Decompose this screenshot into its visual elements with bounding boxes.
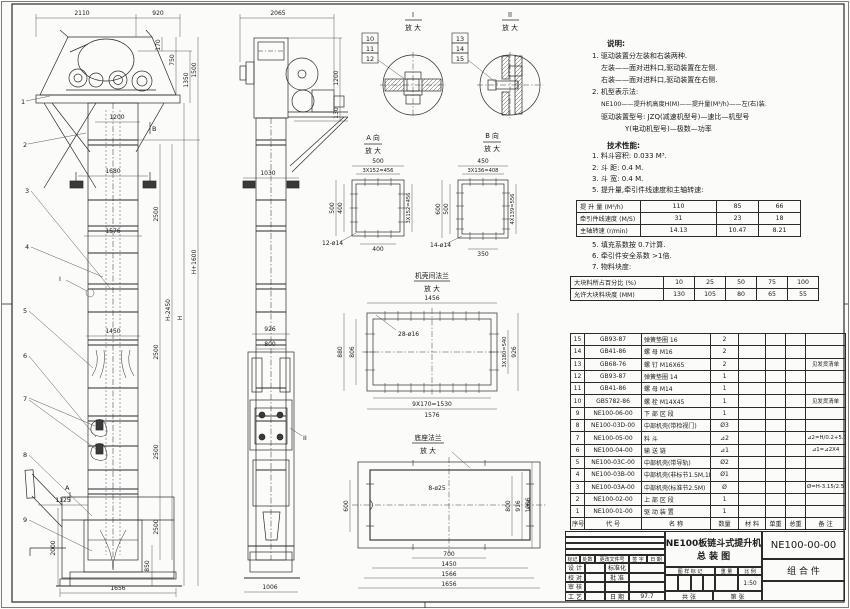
parts-col-totalweight: 总重 xyxy=(786,518,806,530)
parts-cell: NE100-06-00 xyxy=(585,407,642,419)
svg-text:3X152=456: 3X152=456 xyxy=(406,192,412,223)
parts-cell: NE100-04-00 xyxy=(585,444,642,456)
svg-text:926: 926 xyxy=(264,326,276,333)
front-elevation-view xyxy=(25,30,182,586)
parts-cell: ⊿2=H/0.2+5.75 xyxy=(806,432,846,444)
scale-label: 比 例 xyxy=(738,567,762,575)
parts-cell xyxy=(739,334,766,346)
svg-text:B 向: B 向 xyxy=(485,131,499,140)
base-flange-labels: 底座法兰 放 大 8-ø25 600 800 916 1006 700 1450… xyxy=(343,433,532,588)
svg-text:500: 500 xyxy=(329,202,336,214)
speed-label: 主轴转速 (r/min) xyxy=(577,225,641,237)
svg-text:1656: 1656 xyxy=(441,581,456,588)
svg-text:2065: 2065 xyxy=(270,10,285,17)
parts-cell xyxy=(766,456,786,468)
svg-text:11: 11 xyxy=(366,45,374,53)
parts-cell xyxy=(786,481,806,493)
parts-cell: NE100-03B-00 xyxy=(585,469,642,481)
sheet-total: 共 张 xyxy=(665,591,713,601)
title-block: 标记 处数 更改文件号 签 字 日 期 设 计 标准化 校 对 批 准 审 核 … xyxy=(565,531,845,601)
parts-cell xyxy=(786,370,806,382)
stamp-label: 图 样 标 记 xyxy=(665,567,715,575)
svg-text:8-ø25: 8-ø25 xyxy=(428,485,445,492)
role-design: 设 计 xyxy=(565,563,585,573)
parts-cell: 4 xyxy=(571,469,585,481)
svg-text:2: 2 xyxy=(23,141,27,149)
svg-text:9X170=1530: 9X170=1530 xyxy=(412,401,452,408)
front-callout-labels: 1 2 3 4 I 5 6 7 8 9 A B xyxy=(21,98,156,524)
size-label: 大块料所占百分比 (%) xyxy=(571,277,664,289)
svg-text:2110: 2110 xyxy=(74,10,89,17)
parts-cell: NE100-03D-00 xyxy=(585,420,642,432)
svg-text:14-ø14: 14-ø14 xyxy=(430,242,451,249)
note-line: 左装——面对进料口,驱动装置在左侧. xyxy=(601,65,717,73)
svg-text:2000: 2000 xyxy=(50,540,57,555)
parts-cell: 14 xyxy=(571,346,585,358)
parts-cell: 2 xyxy=(711,334,739,346)
drawing-title: NE100板链斗式提升机 总 装 图 xyxy=(665,531,762,567)
size-val: 50 xyxy=(726,277,757,289)
svg-text:926: 926 xyxy=(511,346,518,358)
parts-cell xyxy=(766,420,786,432)
tech-line: 3. 斗 宽: 0.4 M. xyxy=(592,176,643,184)
parts-cell xyxy=(786,383,806,395)
size-val: 55 xyxy=(788,289,819,301)
parts-cell xyxy=(786,334,806,346)
parts-cell: 6 xyxy=(571,444,585,456)
svg-text:10: 10 xyxy=(366,35,374,43)
svg-text:2500: 2500 xyxy=(153,444,160,459)
size-label: 允许大块料块度 (MM) xyxy=(571,289,664,301)
parts-cell: NE100-03C-00 xyxy=(585,456,642,468)
svg-text:8: 8 xyxy=(23,451,27,459)
a-view-labels: A 向 放 大 500 3X152=456 500 400 3X152=456 … xyxy=(322,133,412,253)
rev-col: 标记 xyxy=(565,555,580,563)
parts-cell xyxy=(806,407,846,419)
svg-text:7: 7 xyxy=(23,395,27,403)
parts-cell xyxy=(739,370,766,382)
side-dim-labels: 2065 1200 130 1030 926 800 1006 II xyxy=(260,10,340,591)
svg-text:13: 13 xyxy=(456,35,464,43)
svg-text:1576: 1576 xyxy=(105,228,120,235)
parts-cell xyxy=(739,432,766,444)
parts-cell: 弹簧垫圈 16 xyxy=(642,334,711,346)
parts-cell: 8 xyxy=(571,420,585,432)
size-val: 75 xyxy=(757,277,788,289)
parts-cell: 1 xyxy=(711,506,739,518)
role-process: 工 艺 xyxy=(565,592,585,602)
parts-cell xyxy=(766,444,786,456)
parts-cell xyxy=(786,493,806,505)
size-val: 25 xyxy=(695,277,726,289)
svg-text:5: 5 xyxy=(23,307,27,315)
parts-row: 15GB93-87弹簧垫圈 162 xyxy=(571,334,846,346)
speed-val: 23 xyxy=(717,213,759,225)
parts-cell: 2 xyxy=(711,358,739,370)
parts-cell: 中部机壳(带导轨) xyxy=(642,456,711,468)
parts-cell xyxy=(766,506,786,518)
tech-line: 7. 物料块度: xyxy=(592,264,631,272)
tech-line: 5. 提升量,牵引件线速度和主轴转速: xyxy=(592,187,704,195)
svg-text:2500: 2500 xyxy=(153,519,160,534)
parts-cell xyxy=(739,469,766,481)
svg-text:3: 3 xyxy=(25,187,29,195)
detail-circle-2 xyxy=(452,20,543,118)
svg-text:放 大: 放 大 xyxy=(424,284,440,293)
tech-line: 5. 填充系数按 0.7计算. xyxy=(592,242,666,250)
svg-text:1450: 1450 xyxy=(105,328,120,335)
note-line: 2. 机型表示法: xyxy=(592,89,638,97)
parts-row: 3NE100-03A-00中部机壳(标准节2.5M)ØØ=H-3.15/2.5 xyxy=(571,481,846,493)
parts-row: 2NE100-02-00上 部 区 段1 xyxy=(571,493,846,505)
parts-cell: ⊿1 xyxy=(711,444,739,456)
svg-text:I: I xyxy=(59,275,61,283)
parts-row: 14GB41-86螺 母 M162 xyxy=(571,346,846,358)
size-val: 105 xyxy=(695,289,726,301)
parts-cell xyxy=(806,506,846,518)
tech-line: 1. 料斗容积: 0.033 M³. xyxy=(592,153,667,161)
parts-cell: 10 xyxy=(571,395,585,407)
parts-cell xyxy=(806,456,846,468)
svg-text:14: 14 xyxy=(456,45,464,53)
side-elevation-view xyxy=(240,38,348,578)
parts-cell: ⊿1=⊿2X4 xyxy=(806,444,846,456)
front-dimensions xyxy=(36,14,200,597)
parts-header-row: 序号 代 号 名 称 数量 材 料 单重 总重 备 注 xyxy=(571,518,846,530)
parts-cell: GB93-87 xyxy=(585,334,642,346)
parts-cell: 2 xyxy=(711,346,739,358)
parts-cell xyxy=(766,481,786,493)
parts-cell xyxy=(739,456,766,468)
svg-text:800: 800 xyxy=(505,500,512,512)
parts-cell: NE100-05-00 xyxy=(585,432,642,444)
svg-text:130: 130 xyxy=(333,107,340,119)
parts-cell: GB93-87 xyxy=(585,370,642,382)
parts-row: 13GB68-76螺 钉 M16X652见发货清单 xyxy=(571,358,846,370)
parts-cell: 中部机壳(非标节1.5M,1M) xyxy=(642,469,711,481)
svg-text:I: I xyxy=(412,11,414,19)
parts-cell xyxy=(766,493,786,505)
parts-cell: 12 xyxy=(571,370,585,382)
size-table: 大块料所占百分比 (%)10255075100 允许大块料块度 (MM)1301… xyxy=(570,276,819,301)
parts-cell xyxy=(806,334,846,346)
svg-text:28-ø16: 28-ø16 xyxy=(398,331,419,338)
svg-text:450: 450 xyxy=(477,158,489,165)
parts-cell xyxy=(806,493,846,505)
parts-cell xyxy=(806,370,846,382)
role-date: 日 期 xyxy=(605,592,629,602)
parts-cell xyxy=(786,420,806,432)
svg-text:400: 400 xyxy=(337,202,344,214)
parts-cell: ⊿2 xyxy=(711,432,739,444)
tech-line: 6. 牵引件安全系数 >1倍. xyxy=(592,253,672,261)
parts-cell: NE100-03A-00 xyxy=(585,481,642,493)
parts-cell: 上 部 区 段 xyxy=(642,493,711,505)
parts-cell: GB68-76 xyxy=(585,358,642,370)
parts-cell: Ø=H-3.15/2.5 xyxy=(806,481,846,493)
parts-row: 12GB93-87弹簧垫圈 141 xyxy=(571,370,846,382)
detail-circle-1 xyxy=(362,20,446,118)
parts-cell xyxy=(739,481,766,493)
parts-cell: GB41-86 xyxy=(585,346,642,358)
svg-text:4X139=556: 4X139=556 xyxy=(510,193,516,224)
b-view-labels: B 向 放 大 450 3X136=408 600 500 4X139=556 … xyxy=(430,131,516,258)
speed-label: 提 升 量 (M³/h) xyxy=(577,201,641,213)
parts-col-material: 材 料 xyxy=(739,518,766,530)
parts-cell xyxy=(739,346,766,358)
parts-cell: Ø2 xyxy=(711,456,739,468)
parts-cell: GB41-86 xyxy=(585,383,642,395)
parts-cell: NE100-01-00 xyxy=(585,506,642,518)
svg-text:916: 916 xyxy=(515,500,522,512)
svg-text:2500: 2500 xyxy=(153,206,160,221)
svg-text:H-2450: H-2450 xyxy=(165,299,172,321)
parts-cell xyxy=(786,506,806,518)
parts-cell xyxy=(806,469,846,481)
svg-text:4: 4 xyxy=(25,243,29,251)
svg-text:放 大: 放 大 xyxy=(484,144,500,153)
parts-cell xyxy=(766,383,786,395)
note-line: 右装——面对进料口,驱动装置在右侧. xyxy=(601,77,717,85)
parts-row: 11GB41-86螺 母 M141 xyxy=(571,383,846,395)
parts-cell: 中部机壳(标准节2.5M) xyxy=(642,481,711,493)
svg-text:1450: 1450 xyxy=(441,561,456,568)
role-audit: 审 核 xyxy=(565,582,585,592)
svg-text:机壳间法兰: 机壳间法兰 xyxy=(415,271,449,280)
parts-cell: 11 xyxy=(571,383,585,395)
date-value: 97.7 xyxy=(629,592,665,602)
parts-cell xyxy=(766,370,786,382)
speed-val: 66 xyxy=(759,201,801,213)
parts-cell xyxy=(739,444,766,456)
svg-text:1566: 1566 xyxy=(441,571,456,578)
parts-col-name: 名 称 xyxy=(642,518,711,530)
svg-text:1006: 1006 xyxy=(525,497,532,512)
parts-cell: 驱 动 装 置 xyxy=(642,506,711,518)
parts-row: 10GB5782-86螺 栓 M14X451见发货清单 xyxy=(571,395,846,407)
svg-text:放 大: 放 大 xyxy=(405,23,421,32)
parts-col-unitweight: 单重 xyxy=(766,518,786,530)
parts-cell: 中部机壳(带检视门) xyxy=(642,420,711,432)
front-dim-labels: 2110 920 170 750 1350 1500 1200 1680 157… xyxy=(50,10,198,592)
part-type: 组 合 件 xyxy=(762,559,845,581)
svg-text:A 向: A 向 xyxy=(366,133,380,142)
parts-cell xyxy=(786,469,806,481)
parts-cell: 2 xyxy=(571,493,585,505)
note-line: Y(电动机型号)—极数—功率 xyxy=(625,126,712,134)
parts-cell: 弹簧垫圈 14 xyxy=(642,370,711,382)
svg-text:600: 600 xyxy=(343,500,350,512)
parts-cell xyxy=(766,358,786,370)
svg-text:170: 170 xyxy=(155,39,162,51)
parts-cell: 螺 钉 M16X65 xyxy=(642,358,711,370)
svg-text:3X136=408: 3X136=408 xyxy=(467,168,498,174)
sheet-number: 第 张 xyxy=(713,591,762,601)
drawing-title-line2: 总 装 图 xyxy=(697,549,730,562)
svg-text:1656: 1656 xyxy=(110,585,125,592)
svg-text:600: 600 xyxy=(435,203,442,215)
parts-cell xyxy=(739,420,766,432)
svg-text:700: 700 xyxy=(443,551,455,558)
svg-text:9: 9 xyxy=(23,516,27,524)
parts-cell xyxy=(786,395,806,407)
svg-text:放 大: 放 大 xyxy=(502,23,518,32)
svg-text:6: 6 xyxy=(23,352,27,360)
parts-cell xyxy=(786,444,806,456)
parts-cell xyxy=(766,395,786,407)
svg-text:放 大: 放 大 xyxy=(420,446,436,455)
parts-cell xyxy=(786,432,806,444)
parts-row: 6NE100-04-00输 送 链⊿1⊿1=⊿2X4 xyxy=(571,444,846,456)
parts-cell xyxy=(786,346,806,358)
parts-cell: 5 xyxy=(571,456,585,468)
svg-text:放 大: 放 大 xyxy=(365,146,381,155)
parts-list: 15GB93-87弹簧垫圈 16214GB41-86螺 母 M16213GB68… xyxy=(570,333,846,530)
notes-heading: 说明: xyxy=(607,38,625,49)
svg-text:15: 15 xyxy=(456,55,464,63)
speed-label: 牵引件线速度 (M/S) xyxy=(577,213,641,225)
parts-cell xyxy=(786,358,806,370)
size-val: 130 xyxy=(664,289,695,301)
svg-text:880: 880 xyxy=(337,346,344,358)
parts-col-note: 备 注 xyxy=(806,518,846,530)
rev-col: 签 字 xyxy=(629,555,647,563)
note-line: 驱动装置型号: JZQ(减速机型号)—速比—机型号 xyxy=(601,114,749,122)
svg-text:850: 850 xyxy=(144,560,151,572)
parts-cell xyxy=(739,493,766,505)
speed-val: 31 xyxy=(641,213,717,225)
speed-table: 提 升 量 (M³/h)1108566 牵引件线速度 (M/S)312318 主… xyxy=(576,200,801,237)
size-val: 10 xyxy=(664,277,695,289)
parts-cell xyxy=(739,506,766,518)
parts-cell: 见发货清单 xyxy=(806,395,846,407)
drawing-number: NE100-00-00 xyxy=(762,531,845,559)
svg-text:1680: 1680 xyxy=(105,168,120,175)
parts-cell xyxy=(766,469,786,481)
parts-col-no: 序号 xyxy=(571,518,585,530)
svg-text:1456: 1456 xyxy=(424,295,439,302)
parts-cell xyxy=(739,407,766,419)
rev-col: 日 期 xyxy=(647,555,665,563)
role-check: 校 对 xyxy=(565,573,585,583)
parts-row: 1NE100-01-00驱 动 装 置1 xyxy=(571,506,846,518)
parts-cell: Ø xyxy=(711,481,739,493)
parts-cell: 7 xyxy=(571,432,585,444)
weight-label: 重 量 xyxy=(715,567,738,575)
speed-val: 85 xyxy=(717,201,759,213)
parts-cell: 下 部 区 段 xyxy=(642,407,711,419)
parts-cell xyxy=(766,432,786,444)
parts-cell: 1 xyxy=(711,493,739,505)
svg-text:800: 800 xyxy=(264,341,276,348)
svg-text:806: 806 xyxy=(349,346,356,358)
note-line: NE100——提升机高度H(M)——提升量(M³/h)——左(右)装. xyxy=(601,102,767,109)
parts-cell: 15 xyxy=(571,334,585,346)
svg-text:500: 500 xyxy=(372,158,384,165)
parts-cell: 9 xyxy=(571,407,585,419)
svg-text:1030: 1030 xyxy=(260,170,275,177)
parts-cell xyxy=(766,334,786,346)
speed-val: 110 xyxy=(641,201,717,213)
note-line: 1. 驱动装置分左装和右装两种. xyxy=(592,53,687,61)
parts-cell: 1 xyxy=(711,407,739,419)
svg-text:3X180=540: 3X180=540 xyxy=(502,336,508,367)
svg-text:350: 350 xyxy=(477,251,489,258)
parts-row: 5NE100-03C-00中部机壳(带导轨)Ø2 xyxy=(571,456,846,468)
parts-cell: Ø3 xyxy=(711,420,739,432)
parts-cell xyxy=(786,407,806,419)
tech-line: 2. 斗 距: 0.4 M. xyxy=(592,165,643,173)
rev-col: 处数 xyxy=(580,555,595,563)
parts-cell xyxy=(739,358,766,370)
svg-text:II: II xyxy=(508,11,512,19)
svg-text:1500: 1500 xyxy=(191,62,198,77)
parts-cell xyxy=(766,407,786,419)
svg-text:1200: 1200 xyxy=(333,70,340,85)
drawing-title-line1: NE100板链斗式提升机 xyxy=(666,536,761,549)
parts-cell xyxy=(806,420,846,432)
parts-cell: 螺 栓 M14X45 xyxy=(642,395,711,407)
parts-cell: 1 xyxy=(711,395,739,407)
parts-cell: 1 xyxy=(571,506,585,518)
svg-text:1200: 1200 xyxy=(109,114,124,121)
svg-text:1350: 1350 xyxy=(183,72,190,87)
svg-text:II: II xyxy=(303,434,307,442)
parts-row: 7NE100-05-00料 斗⊿2⊿2=H/0.2+5.75 xyxy=(571,432,846,444)
speed-val: 14.13 xyxy=(641,225,717,237)
svg-text:H+1600: H+1600 xyxy=(191,249,198,274)
svg-text:3X152=456: 3X152=456 xyxy=(362,168,393,174)
parts-cell: 见发货清单 xyxy=(806,358,846,370)
parts-cell xyxy=(806,346,846,358)
tech-heading: 技术性能: xyxy=(607,140,640,151)
parts-row: 9NE100-06-00下 部 区 段1 xyxy=(571,407,846,419)
role-std: 标准化 xyxy=(605,563,629,573)
svg-text:底座法兰: 底座法兰 xyxy=(414,433,441,442)
parts-cell xyxy=(739,383,766,395)
parts-cell: 1 xyxy=(711,383,739,395)
parts-cell xyxy=(739,395,766,407)
svg-text:2500: 2500 xyxy=(153,344,160,359)
svg-text:H: H xyxy=(177,316,184,321)
size-val: 65 xyxy=(757,289,788,301)
parts-row: 4NE100-03B-00中部机壳(非标节1.5M,1M)Ø1 xyxy=(571,469,846,481)
svg-text:1125: 1125 xyxy=(55,497,70,504)
svg-text:500: 500 xyxy=(443,203,450,215)
svg-text:12: 12 xyxy=(366,55,374,63)
svg-text:12-ø14: 12-ø14 xyxy=(322,240,343,247)
parts-cell: 输 送 链 xyxy=(642,444,711,456)
svg-text:400: 400 xyxy=(372,246,384,253)
parts-cell: 料 斗 xyxy=(642,432,711,444)
parts-cell xyxy=(766,346,786,358)
parts-cell: GB5782-86 xyxy=(585,395,642,407)
parts-cell xyxy=(786,456,806,468)
svg-text:750: 750 xyxy=(169,54,176,66)
speed-val: 18 xyxy=(759,213,801,225)
svg-text:B: B xyxy=(152,125,156,133)
svg-text:920: 920 xyxy=(152,10,164,17)
parts-cell: 13 xyxy=(571,358,585,370)
parts-cell xyxy=(806,383,846,395)
drawing-sheet: 2110 920 170 750 1350 1500 1200 1680 157… xyxy=(0,0,850,609)
svg-text:1006: 1006 xyxy=(262,584,277,591)
parts-col-qty: 数量 xyxy=(711,518,739,530)
parts-col-code: 代 号 xyxy=(585,518,642,530)
parts-cell: 螺 母 M14 xyxy=(642,383,711,395)
parts-cell: 3 xyxy=(571,481,585,493)
parts-row: 8NE100-03D-00中部机壳(带检视门)Ø3 xyxy=(571,420,846,432)
